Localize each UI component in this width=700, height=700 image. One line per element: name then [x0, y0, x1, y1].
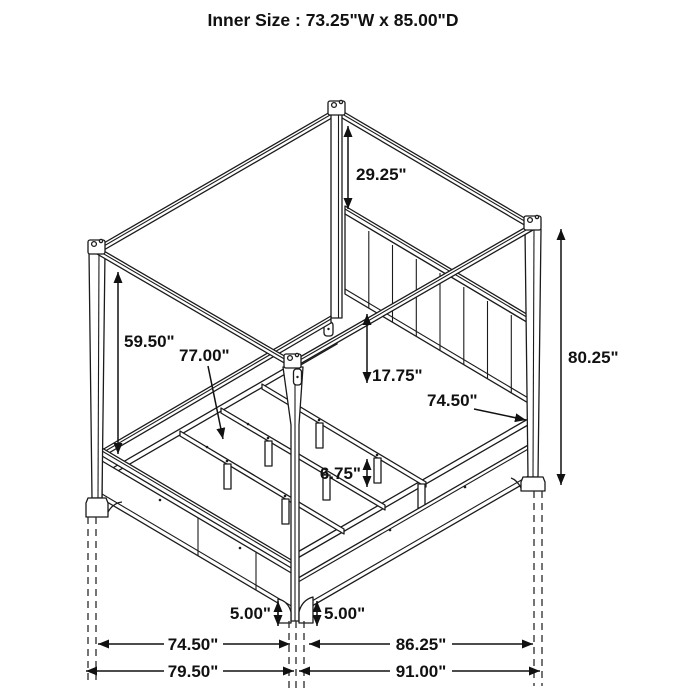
dim-label-5-00-right: 5.00" [324, 604, 365, 623]
dim-label-17-75: 17.75" [372, 366, 423, 385]
dim-label-59-50: 59.50" [124, 332, 175, 351]
dimension-overall-width: 79.50" [86, 662, 294, 681]
dim-label-29-25: 29.25" [356, 165, 407, 184]
dim-label-91-00: 91.00" [396, 662, 447, 681]
dimension-overall-height: 80.25" [561, 229, 619, 485]
dim-label-74-50-bottom: 74.50" [168, 635, 219, 654]
dim-label-80-25: 80.25" [568, 348, 619, 367]
dim-label-5-00-left: 5.00" [230, 604, 271, 623]
back-post [331, 110, 342, 318]
dimension-center-leg-height: 6.75" [320, 459, 367, 487]
bed-diagram-svg: Inner Size : 73.25"W x 85.00"D [0, 0, 700, 700]
dimension-mattress-rail-length: 74.50" [427, 391, 526, 420]
dimension-footboard-span: 74.50" [98, 635, 290, 654]
dimension-foot-right: 5.00" [317, 601, 365, 626]
dim-label-74-50-mid: 74.50" [427, 391, 478, 410]
canopy-frame-back [97, 108, 533, 254]
dimension-diagram-page: Inner Size : 73.25"W x 85.00"D [0, 0, 700, 700]
dimension-side-rail-span: 86.25" [309, 635, 533, 654]
page-title: Inner Size : 73.25"W x 85.00"D [207, 10, 458, 30]
dim-label-77-00: 77.00" [179, 346, 230, 365]
footboard [102, 448, 293, 612]
dim-label-6-75: 6.75" [320, 464, 361, 483]
dim-label-79-50: 79.50" [168, 662, 219, 681]
dimension-foot-left: 5.00" [230, 601, 278, 626]
dimension-overall-depth: 91.00" [299, 662, 540, 681]
dim-label-86-25: 86.25" [396, 635, 447, 654]
